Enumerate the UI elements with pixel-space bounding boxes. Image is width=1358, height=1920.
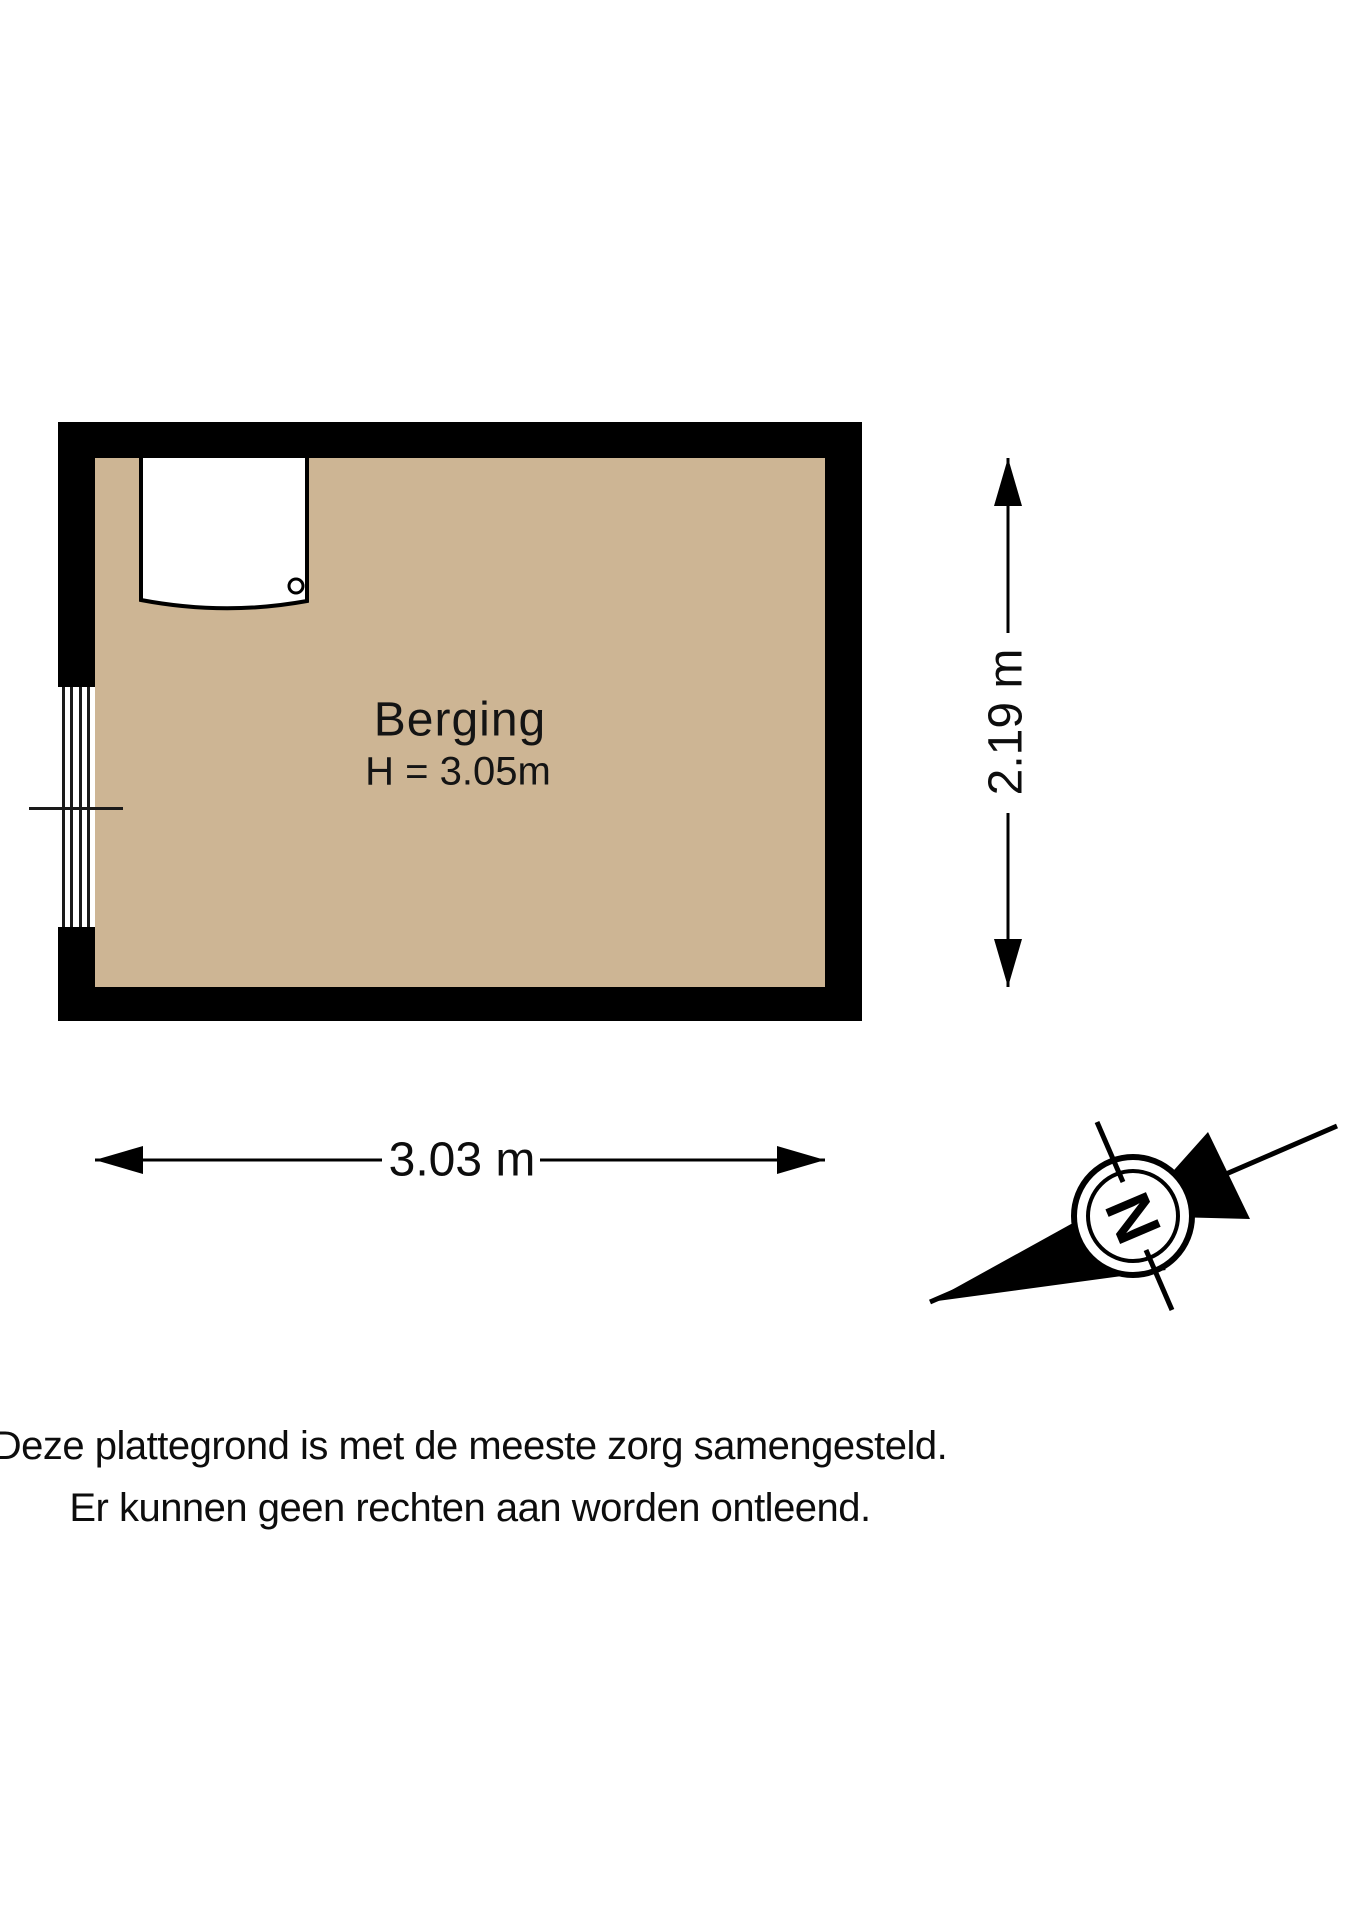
disclaimer-line-2: Er kunnen geen rechten aan worden ontlee… <box>69 1486 870 1531</box>
wall-left-upper <box>58 422 95 687</box>
dimension-height-label: 2.19 m <box>979 649 1034 796</box>
arrow-right-icon <box>777 1146 825 1174</box>
arrow-left-icon <box>95 1146 143 1174</box>
arrow-down-icon <box>994 939 1022 987</box>
wall-right <box>825 422 862 1021</box>
boiler-outline <box>141 455 307 608</box>
boiler-valve-dot <box>289 579 303 593</box>
wall-left-lower <box>58 927 95 1021</box>
boiler-symbol <box>137 453 313 623</box>
arrow-up-icon <box>994 458 1022 506</box>
disclaimer-line-1: Deze plattegrond is met de meeste zorg s… <box>0 1424 947 1469</box>
wall-bottom <box>58 987 862 1021</box>
room-name-label: Berging <box>374 693 546 748</box>
floorplan-page: Berging H = 3.05m 3.03 m 2.19 m N Deze p… <box>0 0 1358 1920</box>
window-center-tick <box>29 807 123 810</box>
compass-north-icon: N <box>900 1090 1358 1330</box>
dimension-width-label: 3.03 m <box>389 1133 536 1188</box>
wall-top <box>58 422 862 458</box>
room-ceiling-height-label: H = 3.05m <box>365 750 551 795</box>
